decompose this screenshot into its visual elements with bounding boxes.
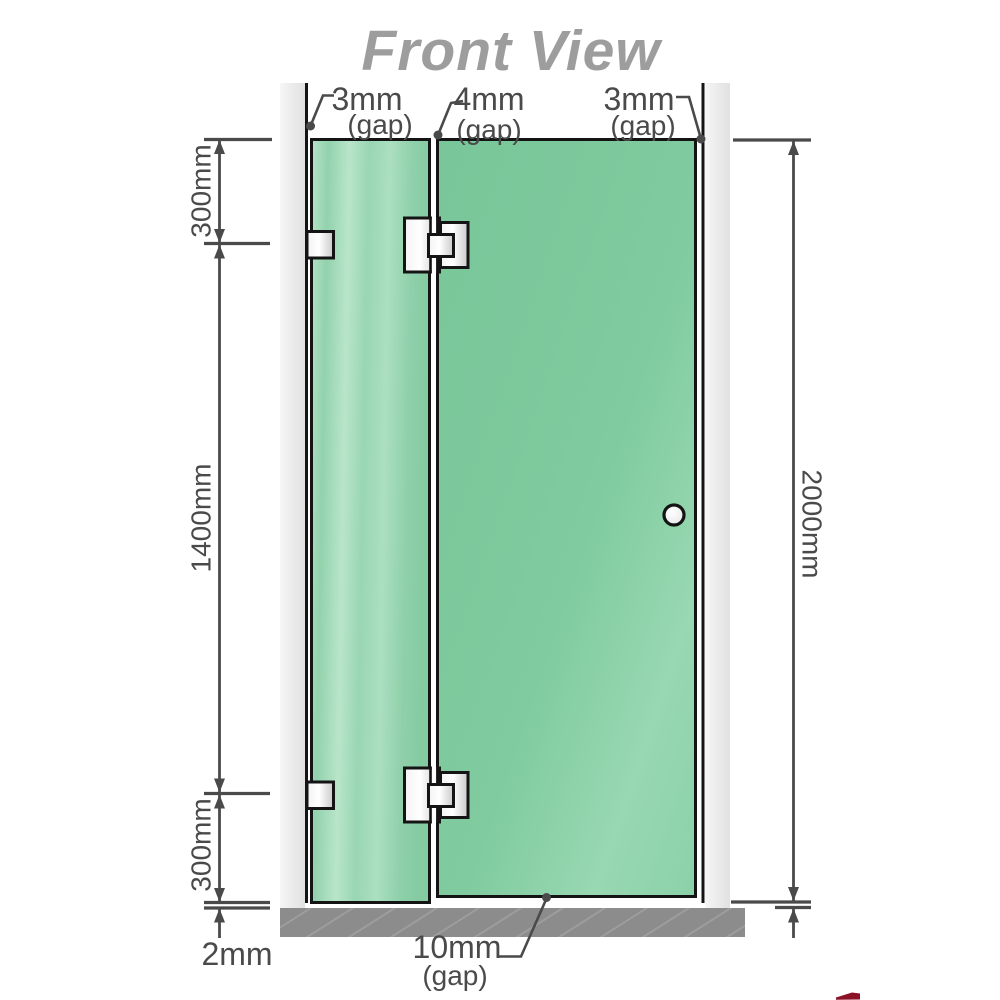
- callout-gap-right: 3mm (gap): [603, 81, 705, 144]
- dim-label-2000: 2000mm: [797, 470, 828, 579]
- dim-label-300-top: 300mm: [186, 144, 217, 237]
- dim-label-2mm: 2mm: [201, 936, 272, 972]
- hinge-top-knuckle: [429, 235, 454, 257]
- right-wall: [705, 83, 730, 908]
- door-glass-panel: [438, 140, 696, 897]
- logo-fragment: [836, 993, 860, 1000]
- wall-bracket-top: [307, 232, 334, 259]
- shower-screen-front-view-diagram: 300mm 1400mm 300mm 2mm 2000mm 3mm (gap) …: [0, 0, 1000, 1000]
- diagram-canvas: 300mm 1400mm 300mm 2mm 2000mm 3mm (gap) …: [0, 0, 1000, 1000]
- wall-bracket-bottom: [307, 782, 334, 809]
- gap-bottom-note: (gap): [422, 960, 487, 991]
- callout-gap-left: 3mm (gap): [306, 81, 413, 140]
- gap-middle-value: 4mm: [453, 81, 524, 117]
- floor: [262, 906, 776, 939]
- dim-label-300-bottom: 300mm: [186, 798, 217, 891]
- hinge-bottom: [405, 767, 469, 824]
- glass-panels: [312, 140, 696, 903]
- hinge-top: [405, 217, 469, 274]
- leader-dot: [542, 893, 551, 902]
- dimensions-right: 2000mm: [731, 140, 828, 938]
- leader-dot: [306, 122, 315, 131]
- arrowhead: [788, 141, 799, 155]
- callout-gap-middle: 4mm (gap): [434, 81, 525, 145]
- left-wall: [280, 83, 305, 908]
- leader-dot: [697, 135, 706, 144]
- arrowhead: [214, 245, 225, 259]
- dimensions-left: 300mm 1400mm 300mm 2mm: [186, 140, 273, 973]
- leader-line: [676, 97, 701, 139]
- gap-middle-note: (gap): [456, 114, 521, 145]
- arrowhead: [788, 887, 799, 901]
- callout-gap-bottom: 10mm (gap): [413, 893, 551, 991]
- leader-dot: [434, 131, 443, 140]
- gap-right-note: (gap): [610, 110, 675, 141]
- arrowhead: [788, 909, 799, 923]
- arrowhead: [214, 909, 225, 923]
- dim-label-1400: 1400mm: [186, 464, 217, 573]
- hinge-bottom-knuckle: [429, 785, 454, 807]
- page-title: Front View: [361, 19, 663, 83]
- door-handle: [664, 505, 684, 525]
- arrowhead: [214, 779, 225, 793]
- gap-left-note: (gap): [347, 109, 412, 140]
